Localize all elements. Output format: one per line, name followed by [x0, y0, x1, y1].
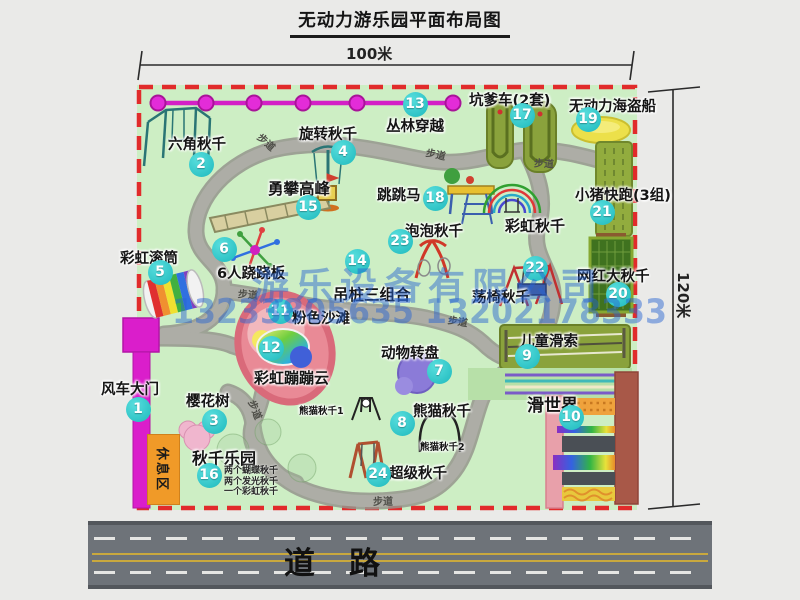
- animal-carousel-label: 动物转盘: [381, 342, 439, 363]
- jumping-horse-badge: 18: [423, 186, 448, 211]
- hanging-piles-combo-label: 吊桩三组合: [333, 283, 411, 305]
- park-layout-diagram: 无动力游乐园平面布局图 100米 120米: [0, 0, 800, 600]
- peak-climbing-badge: 15: [296, 195, 321, 220]
- rest-area-box: 休息区: [147, 434, 180, 505]
- hanging-piles-combo-badge: 14: [345, 249, 370, 274]
- pirate-ship-badge: 19: [576, 107, 601, 132]
- hexagon-swing-label: 六角秋千: [168, 133, 226, 154]
- cherry-tree-badge: 3: [202, 409, 227, 434]
- rotating-swing-badge: 4: [331, 140, 356, 165]
- chair-swing-label: 荡椅秋千: [472, 286, 530, 307]
- jungle-traverse-label: 丛林穿越: [386, 115, 444, 136]
- pink-beach-badge: 11: [268, 299, 293, 324]
- walkway-label-4: 步道: [237, 285, 258, 302]
- bubble-swing-badge: 23: [388, 229, 413, 254]
- jumping-horse-label: 跳跳马: [377, 184, 421, 205]
- six-person-seesaw-badge: 6: [212, 237, 237, 262]
- rest-area-label: 休息区: [154, 447, 173, 492]
- kengdie-cars-badge: 17: [510, 103, 535, 128]
- piggy-run-badge: 21: [590, 200, 615, 225]
- panda-swing-label: 熊猫秋千: [413, 400, 471, 421]
- six-person-seesaw-label: 6人跷跷板: [217, 262, 285, 283]
- peak-climbing-label: 勇攀高峰: [268, 177, 330, 199]
- chair-swing-badge: 22: [523, 256, 548, 281]
- bubble-swing-label: 泡泡秋千: [405, 220, 463, 241]
- piggy-run-label: 小猪快跑(3组): [575, 184, 671, 205]
- super-swing-label: 超级秋千: [389, 462, 447, 483]
- super-swing-badge: 24: [366, 462, 391, 487]
- cherry-tree-label: 樱花树: [186, 390, 230, 411]
- swing-paradise-sublabels: 两个蝴蝶秋千两个发光秋千一个彩虹秋千: [224, 466, 278, 498]
- animal-carousel-badge: 7: [427, 359, 452, 384]
- panda-swing-1-label: 熊猫秋千1: [299, 403, 344, 417]
- windmill-gate-label: 风车大门: [101, 378, 159, 399]
- rainbow-roller-badge: 5: [148, 260, 173, 285]
- pink-beach-label: 粉色沙滩: [292, 307, 350, 328]
- panda-swing-badge: 8: [390, 411, 415, 436]
- hexagon-swing-badge: 2: [189, 152, 214, 177]
- panda-swing-2-label: 熊猫秋千2: [420, 439, 465, 453]
- kengdie-cars-label: 坑爹车(2套): [469, 89, 550, 110]
- rainbow-swing-label: 彩虹秋千: [505, 215, 565, 236]
- rainbow-bounce-cloud-badge: 12: [259, 336, 284, 361]
- walkway-label-5: 步道: [447, 311, 469, 329]
- jungle-traverse-badge: 13: [403, 92, 428, 117]
- kids-zipline-badge: 9: [515, 344, 540, 369]
- rainbow-bounce-cloud-label: 彩虹蹦蹦云: [254, 367, 329, 388]
- swing-paradise-badge: 16: [197, 463, 222, 488]
- walkway-label-3: 步道: [534, 154, 555, 170]
- slide-world-badge: 10: [559, 405, 584, 430]
- big-net-swing-badge: 20: [606, 282, 631, 307]
- windmill-gate-badge: 1: [126, 397, 151, 422]
- walkway-label-7: 步道: [373, 493, 393, 508]
